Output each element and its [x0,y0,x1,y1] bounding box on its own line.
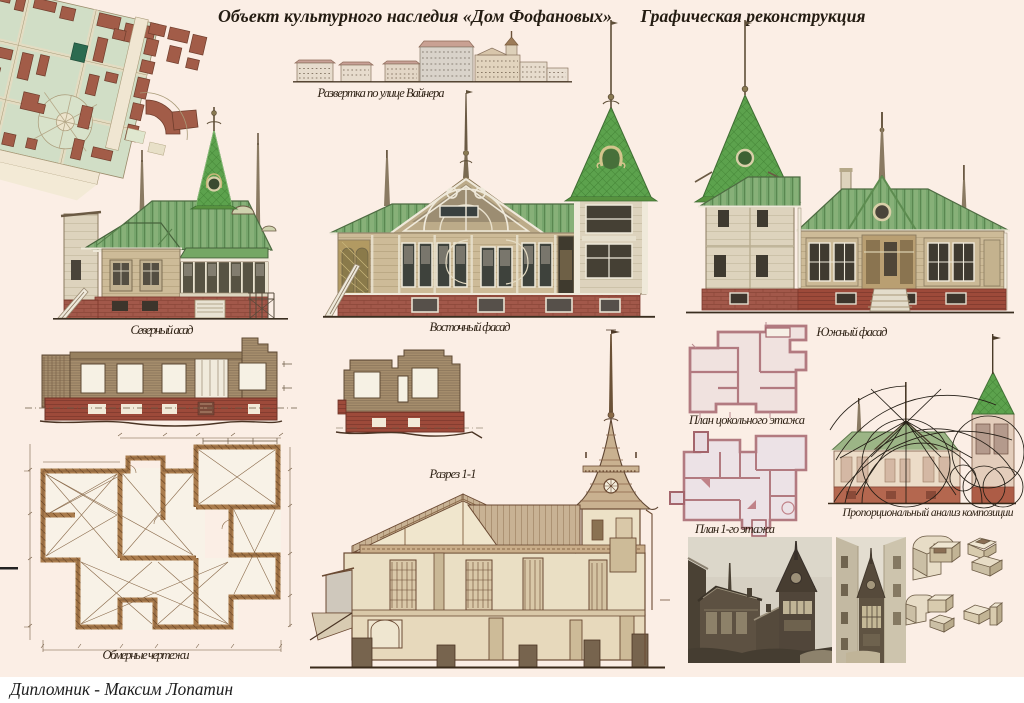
svg-text:Графическая реконструкция: Графическая реконструкция [640,6,866,26]
svg-text:Восточный фасад: Восточный фасад [430,320,511,334]
svg-text:План цокольного этажа: План цокольного этажа [688,413,805,427]
svg-text:Разрез 1-1: Разрез 1-1 [429,467,477,481]
svg-text:Дипломник - Максим Лопатин: Дипломник - Максим Лопатин [8,679,233,699]
svg-text:План 1-го этажа: План 1-го этажа [694,522,775,536]
svg-text:Северный асад: Северный асад [131,323,194,337]
svg-text:Развертка по улице Вайнера: Развертка по улице Вайнера [317,86,445,100]
svg-text:Обмерные чертежи: Обмерные чертежи [103,648,190,662]
svg-text:Объект культурного наследия «Д: Объект культурного наследия «Дом Фофанов… [218,6,612,26]
svg-text:Южный фасад: Южный фасад [816,325,888,339]
svg-text:Пропорциональный анализ композ: Пропорциональный анализ композиции [842,506,1014,519]
